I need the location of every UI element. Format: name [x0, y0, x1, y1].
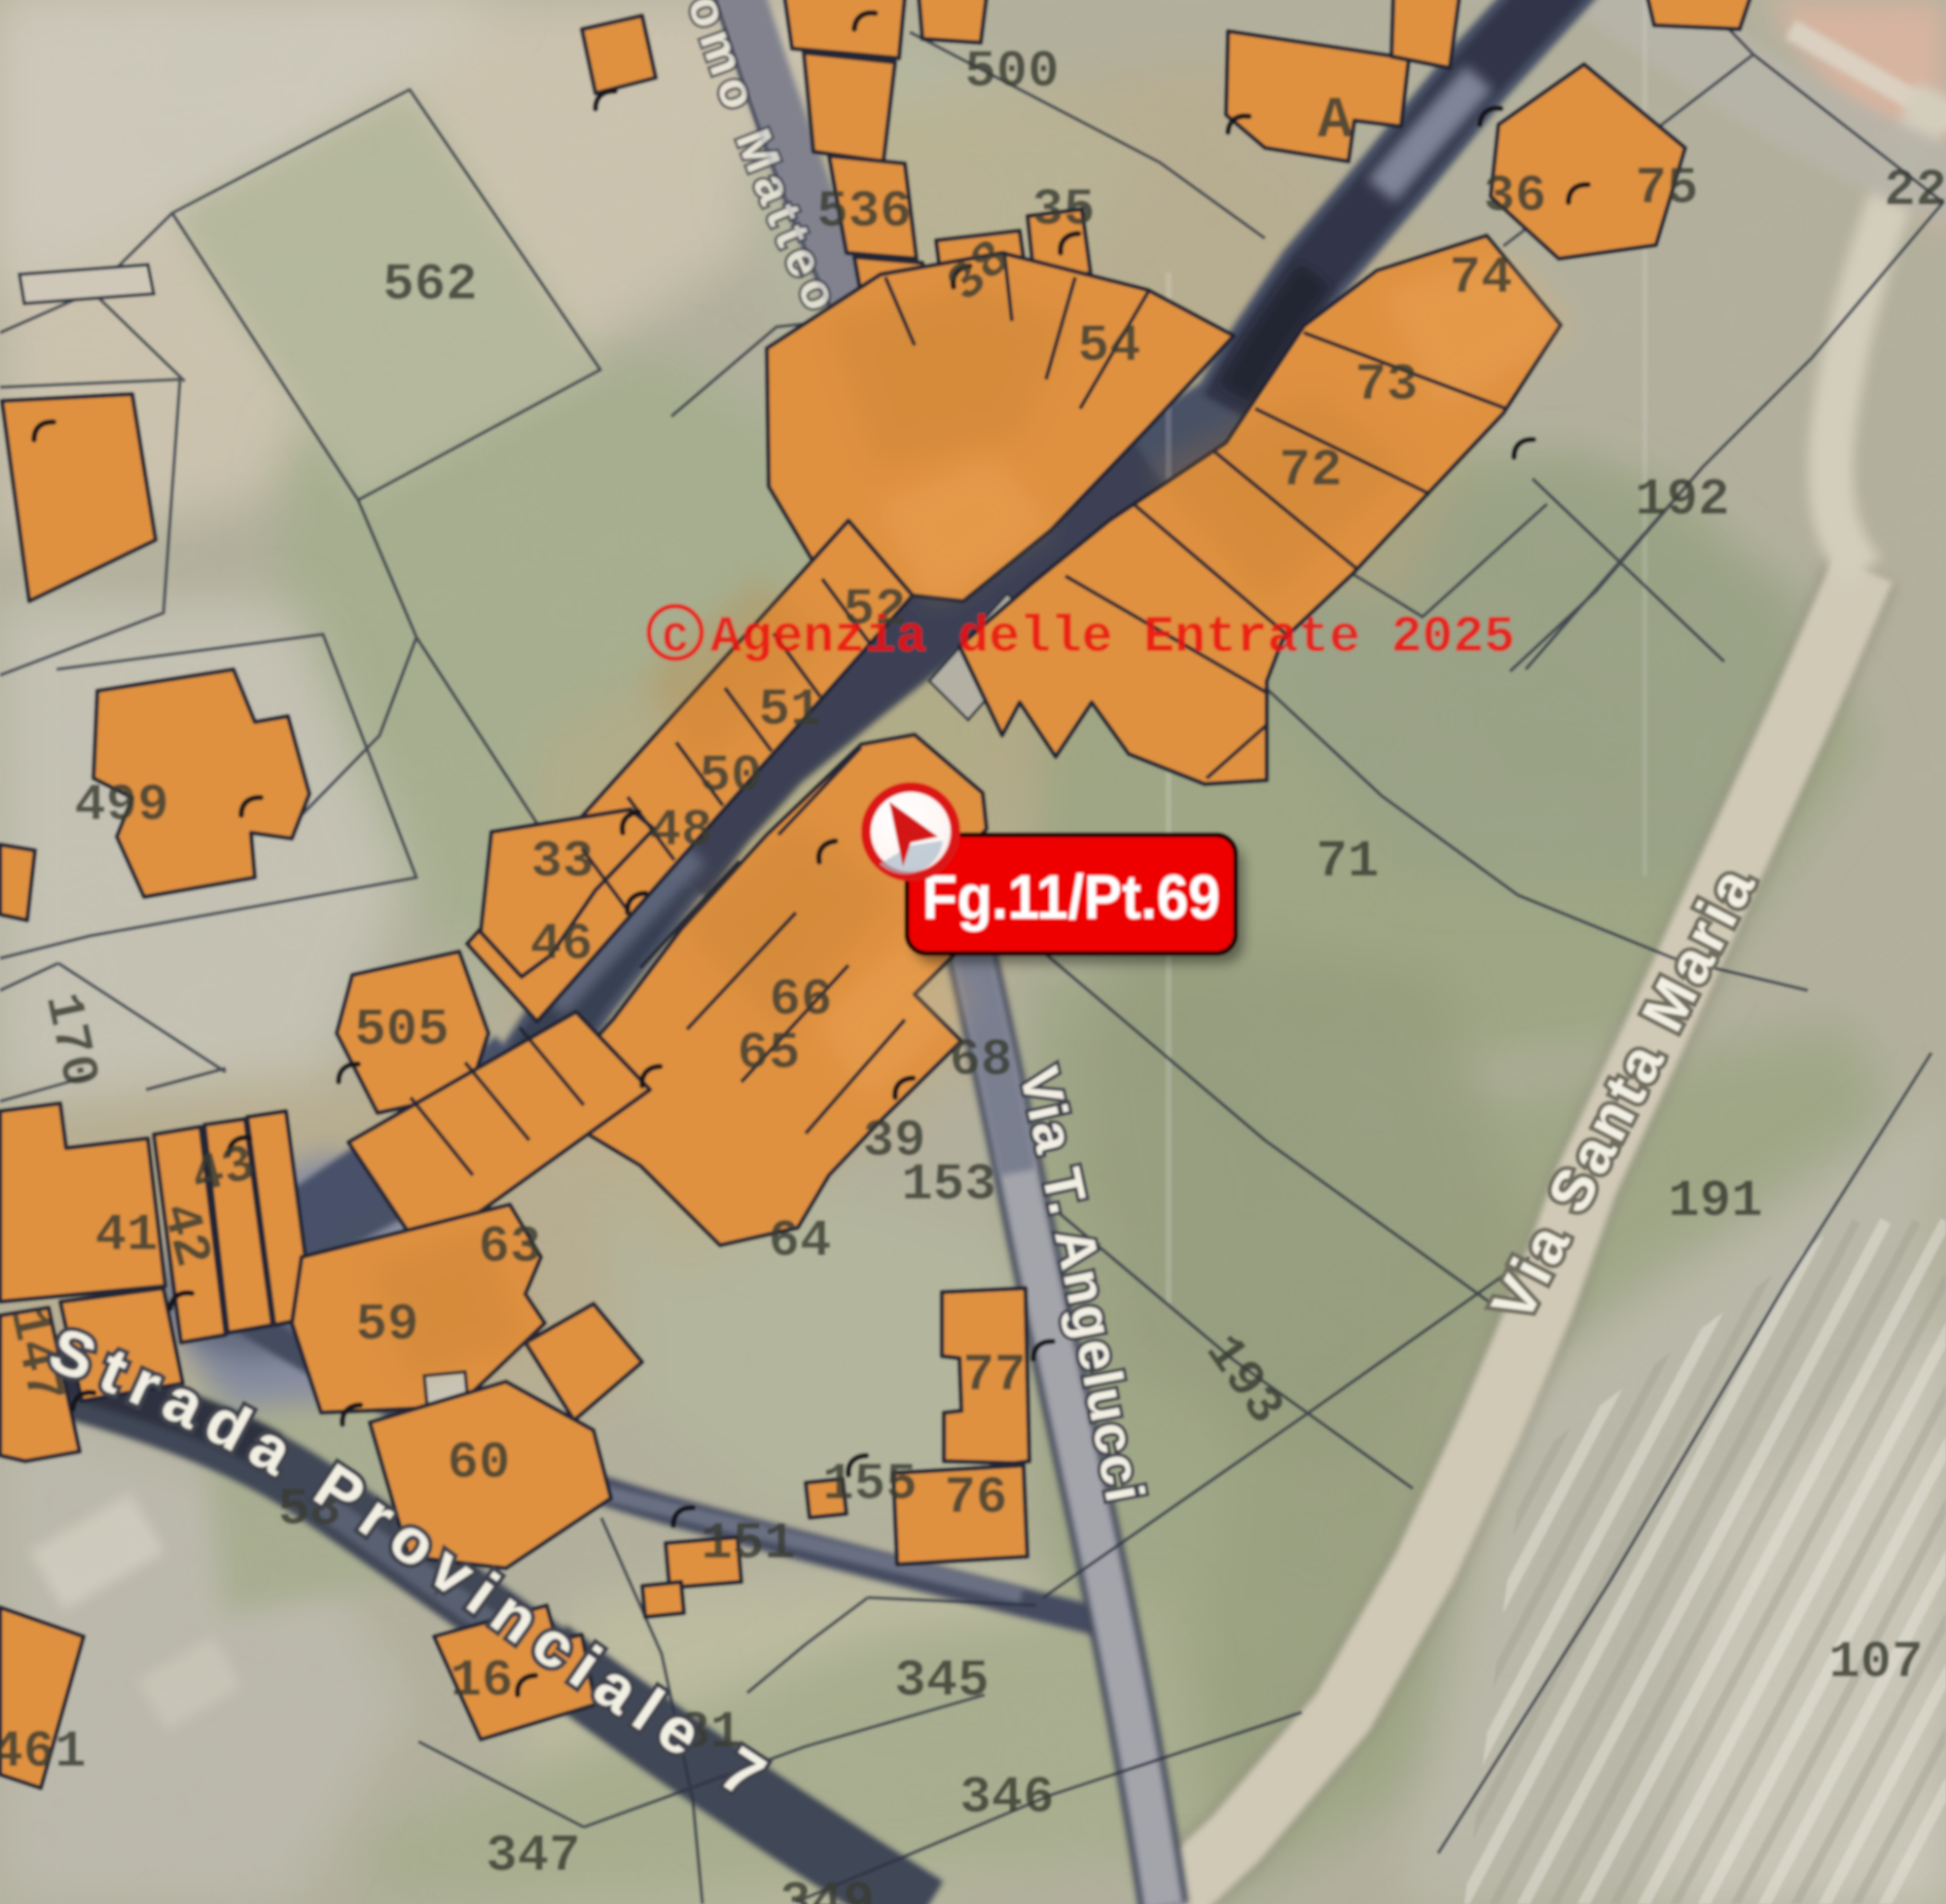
svg-text:153: 153: [901, 1156, 995, 1215]
svg-text:48: 48: [650, 802, 713, 861]
svg-text:76: 76: [945, 1469, 1008, 1528]
svg-text:60: 60: [448, 1434, 511, 1493]
svg-text:77: 77: [963, 1347, 1027, 1406]
svg-text:66: 66: [770, 971, 833, 1030]
svg-text:72: 72: [1279, 442, 1343, 501]
svg-text:155: 155: [822, 1455, 917, 1515]
svg-text:Agenzia delle Entrate 2025: Agenzia delle Entrate 2025: [710, 608, 1515, 666]
svg-text:73: 73: [1355, 356, 1419, 415]
svg-text:536: 536: [816, 183, 911, 242]
svg-text:36: 36: [1484, 167, 1547, 227]
svg-text:75: 75: [1636, 160, 1699, 219]
svg-text:A: A: [1317, 89, 1352, 155]
svg-text:63: 63: [479, 1218, 542, 1277]
svg-text:349: 349: [779, 1874, 874, 1904]
svg-text:461: 461: [0, 1723, 87, 1782]
svg-text:562: 562: [382, 256, 477, 315]
svg-text:346: 346: [959, 1769, 1054, 1828]
svg-text:347: 347: [486, 1827, 580, 1886]
svg-text:65: 65: [738, 1024, 801, 1084]
svg-text:500: 500: [964, 43, 1059, 102]
svg-text:227: 227: [1884, 162, 1946, 221]
svg-text:71: 71: [1316, 833, 1380, 892]
svg-text:35: 35: [1032, 181, 1096, 240]
svg-text:499: 499: [74, 776, 168, 836]
svg-text:33: 33: [531, 833, 595, 892]
svg-text:46: 46: [530, 916, 594, 975]
svg-text:59: 59: [356, 1296, 419, 1355]
svg-text:64: 64: [769, 1212, 832, 1272]
svg-text:54: 54: [1078, 317, 1141, 377]
svg-text:Fg.11/Pt.69: Fg.11/Pt.69: [922, 862, 1220, 932]
svg-text:192: 192: [1635, 471, 1729, 530]
svg-text:16: 16: [450, 1652, 514, 1711]
svg-text:50: 50: [700, 747, 763, 807]
svg-text:51: 51: [759, 681, 822, 740]
svg-text:191: 191: [1668, 1172, 1762, 1232]
svg-text:C: C: [663, 616, 688, 665]
svg-text:68: 68: [950, 1031, 1013, 1091]
svg-text:345: 345: [894, 1652, 989, 1711]
svg-text:151: 151: [701, 1515, 795, 1574]
svg-text:505: 505: [354, 1001, 449, 1060]
svg-text:74: 74: [1450, 249, 1513, 308]
svg-text:107: 107: [1828, 1634, 1923, 1693]
